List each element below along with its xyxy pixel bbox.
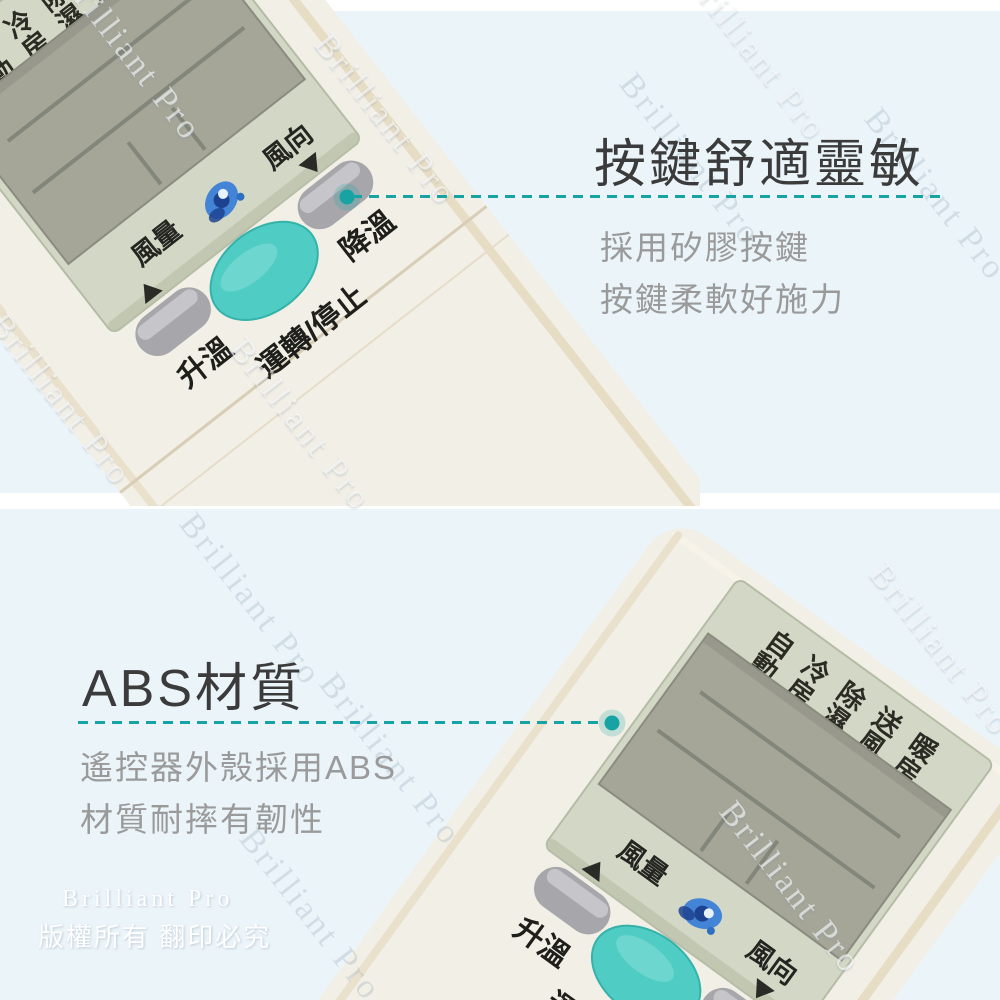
product-detail-image: 自動 冷房 除濕 送風 暖房 風量 風向 <box>0 0 1000 1000</box>
section-material-heading: ABS材質 <box>82 646 305 721</box>
section-buttons-heading: 按鍵舒適靈敏 <box>594 122 924 197</box>
copyright-text: 版權所有 翻印必究 <box>38 917 271 954</box>
section-buttons-line2: 按鍵柔軟好施力 <box>600 274 845 326</box>
leader-dot-material <box>605 716 620 731</box>
leader-line-buttons <box>352 195 940 198</box>
section-buttons-line1: 採用矽膠按鍵 <box>600 222 845 274</box>
section-material-body: 遙控器外殼採用ABS 材質耐摔有韌性 <box>80 742 397 846</box>
copyright-block: Brilliant Pro 版權所有 翻印必究 <box>38 886 271 954</box>
leader-dot-buttons <box>340 190 355 205</box>
brand-name: Brilliant Pro <box>62 886 271 913</box>
section-material-line1: 遙控器外殼採用ABS <box>80 742 397 794</box>
remote-photo-top: 自動 冷房 除濕 送風 暖房 風量 風向 <box>0 0 700 506</box>
leader-line-material <box>78 721 608 724</box>
section-material-line2: 材質耐摔有韌性 <box>80 794 397 846</box>
section-buttons-body: 採用矽膠按鍵 按鍵柔軟好施力 <box>600 222 845 326</box>
